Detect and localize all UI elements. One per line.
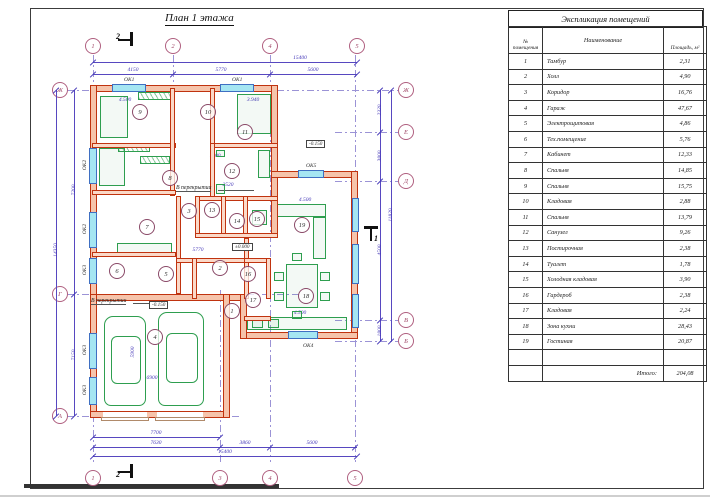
dimension-line: [93, 456, 357, 457]
table-row: 16Гардероб2,38: [509, 287, 707, 303]
window: [352, 294, 359, 328]
table-row: 3Коридор16,76: [509, 85, 707, 101]
section-mark-line: [118, 471, 130, 473]
room-number-cell: 3: [509, 85, 543, 101]
dimension-label: 4500: [377, 245, 383, 256]
room-area-cell: 1,78: [664, 256, 707, 272]
axis-circle: Б: [398, 333, 414, 349]
room-name-cell: Тех.помещение: [543, 131, 664, 147]
room-area-cell: 20,87: [664, 334, 707, 350]
dimension-label: 3800: [377, 151, 383, 162]
empty-cell: [509, 350, 543, 366]
room-area-cell: 13,79: [664, 209, 707, 225]
table-row: 7Кабинет12,33: [509, 147, 707, 163]
window: [352, 244, 359, 284]
car-top-view: [104, 316, 146, 406]
room-number-circle: 10: [200, 104, 216, 120]
dimension-label: 14350: [53, 243, 59, 257]
room-number-circle: 17: [245, 292, 261, 308]
window-label: ОК3: [82, 345, 88, 355]
bathtub: [258, 150, 270, 178]
room-area-cell: 14,85: [664, 163, 707, 179]
axis-circle: 5: [349, 38, 365, 54]
dimension-label: 4150: [128, 67, 139, 73]
dimension-label: 7200: [71, 185, 77, 196]
furniture-chair: [292, 253, 302, 261]
inner-dimension-label: 5770: [193, 247, 204, 253]
room-number-cell: 12: [509, 225, 543, 241]
axis-circle: 1: [85, 470, 101, 486]
interior-wall: [176, 258, 246, 263]
interior-wall: [221, 196, 226, 238]
dimension-label: 15400: [293, 55, 307, 61]
exterior-wall: [271, 85, 278, 238]
dimension-line: [93, 437, 220, 438]
room-number-circle: 7: [139, 219, 155, 235]
section-mark-label: 1: [374, 234, 378, 243]
axis-circle: 2: [165, 38, 181, 54]
room-name-cell: Кладовая: [543, 194, 664, 210]
section-mark-flag: [130, 464, 133, 478]
table-row: 8Спальня14,85: [509, 163, 707, 179]
interior-wall: [195, 233, 278, 238]
garage-door-leaf: [101, 417, 149, 421]
table-row: 6Тех.помещение5,76: [509, 131, 707, 147]
furniture-wardrobe: [140, 156, 170, 164]
room-number-circle: 16: [240, 266, 256, 282]
room-number-circle: 8: [162, 170, 178, 186]
ceiling-note: В перекрытии: [91, 298, 126, 305]
furniture-sofa: [274, 204, 326, 217]
room-name-cell: Спальня: [543, 178, 664, 194]
section-mark-line: [370, 229, 372, 241]
dimension-label: 11820: [388, 208, 394, 221]
drawing-sheet: План 1 этажа 12451345ЖГАЖЕДВБ15400415057…: [0, 0, 710, 502]
room-area-cell: 2,38: [664, 287, 707, 303]
section-mark-line: [118, 39, 130, 41]
room-number-cell: 6: [509, 131, 543, 147]
room-area-cell: 5,76: [664, 131, 707, 147]
furniture-chair: [320, 292, 330, 301]
interior-wall: [195, 196, 278, 201]
room-area-cell: 4,90: [664, 69, 707, 85]
section-mark-flag: [130, 32, 133, 46]
axis-circle: Ж: [398, 82, 414, 98]
room-number-cell: 8: [509, 163, 543, 179]
room-number-cell: 7: [509, 147, 543, 163]
room-number-cell: 15: [509, 272, 543, 288]
room-name-cell: Коридор: [543, 85, 664, 101]
inner-dimension-label: 6900: [147, 375, 158, 381]
room-number-circle: 6: [109, 263, 125, 279]
window-label: ОК5: [306, 163, 316, 169]
col-header-area: Площадь, м²: [664, 27, 707, 54]
window: [89, 148, 97, 184]
interior-wall: [266, 258, 271, 299]
dimension-line: [93, 447, 357, 448]
room-number-circle: 3: [181, 203, 197, 219]
room-name-cell: Холл: [543, 69, 664, 85]
window: [298, 170, 324, 178]
table-total-row: Итого:204,08: [509, 365, 707, 382]
dimension-label: 7150: [71, 350, 77, 361]
interior-wall: [192, 258, 197, 299]
room-name-cell: Холодная кладовая: [543, 272, 664, 288]
room-number-circle: 12: [224, 163, 240, 179]
table-row: 9Спальня15,75: [509, 178, 707, 194]
window-label: ОК4: [303, 343, 313, 349]
car-cabin: [166, 333, 199, 383]
table-row: 13Постирочная2,38: [509, 241, 707, 257]
interior-wall: [92, 190, 176, 195]
window: [89, 212, 97, 248]
room-area-cell: 2,38: [664, 241, 707, 257]
level-mark: -0.150: [306, 140, 325, 148]
table-header-row: № помещенияНаименованиеПлощадь, м²: [509, 27, 707, 54]
room-number-cell: 17: [509, 303, 543, 319]
table-row: 19Гостиная20,87: [509, 334, 707, 350]
room-number-cell: 11: [509, 209, 543, 225]
axis-circle: 3: [212, 470, 228, 486]
room-name-cell: Гостиная: [543, 334, 664, 350]
room-name-cell: Зона кухни: [543, 319, 664, 335]
room-number-circle: 1: [224, 303, 240, 319]
explication-table: № помещенияНаименованиеПлощадь, м²1Тамбу…: [508, 26, 707, 382]
total-label: Итого:: [543, 365, 664, 382]
furniture-chair: [320, 272, 330, 281]
toilet: [216, 184, 225, 194]
room-name-cell: Кладовая: [543, 303, 664, 319]
table-row: 17Кладовая2,24: [509, 303, 707, 319]
room-number-circle: 13: [204, 202, 220, 218]
room-name-cell: Спальня: [543, 163, 664, 179]
ceiling-note: В перекрытии: [176, 185, 211, 192]
level-mark: ±0.000: [232, 243, 253, 251]
window: [288, 331, 318, 339]
room-area-cell: 47,67: [664, 100, 707, 116]
interior-wall: [210, 143, 215, 201]
car-cabin: [111, 336, 141, 384]
room-name-cell: Туалет: [543, 256, 664, 272]
furniture-wardrobe: [138, 92, 172, 100]
table-row: 11Спальня13,79: [509, 209, 707, 225]
window: [220, 84, 254, 92]
window: [89, 258, 97, 284]
room-number-cell: 13: [509, 241, 543, 257]
room-name-cell: Тамбур: [543, 54, 664, 70]
room-area-cell: 2,88: [664, 194, 707, 210]
axis-grid-line: [335, 181, 398, 182]
window-label: ОК3: [82, 385, 88, 395]
window-label: ОК3: [82, 265, 88, 275]
window: [89, 377, 97, 405]
dimension-line: [93, 74, 357, 75]
room-area-cell: 12,33: [664, 147, 707, 163]
room-area-cell: 9,26: [664, 225, 707, 241]
bath-sink: [216, 150, 225, 157]
room-name-cell: Гараж: [543, 100, 664, 116]
window: [112, 84, 146, 92]
room-name-cell: Спальня: [543, 209, 664, 225]
table-row: 5Электрощитовая4,86: [509, 116, 707, 132]
window-label: ОК2: [82, 224, 88, 234]
interior-wall: [210, 143, 278, 148]
inner-dimension-label: 4.500: [299, 197, 311, 203]
dimension-label: 5600: [307, 440, 318, 446]
room-area-cell: 2,24: [664, 303, 707, 319]
room-area-cell: 3,90: [664, 272, 707, 288]
dimension-label: 3860: [240, 440, 251, 446]
room-number-circle: 5: [158, 266, 174, 282]
room-area-cell: 4,86: [664, 116, 707, 132]
room-number-circle: 18: [298, 288, 314, 304]
dimension-label: 1800: [377, 326, 383, 337]
dimension-line: [93, 62, 357, 63]
explication-table-wrap: № помещенияНаименованиеПлощадь, м²1Тамбу…: [508, 26, 707, 382]
room-number-cell: 16: [509, 287, 543, 303]
table-row: 10Кладовая2,88: [509, 194, 707, 210]
room-name-cell: Кабинет: [543, 147, 664, 163]
room-name-cell: Санузел: [543, 225, 664, 241]
table-row: 12Санузел9,26: [509, 225, 707, 241]
table-row: 18Зона кухни28,43: [509, 319, 707, 335]
room-area-cell: 15,75: [664, 178, 707, 194]
room-area-cell: 16,76: [664, 85, 707, 101]
room-number-cell: 1: [509, 54, 543, 70]
room-number-cell: 19: [509, 334, 543, 350]
room-number-cell: 9: [509, 178, 543, 194]
level-mark: -0.150: [149, 301, 168, 309]
room-number-cell: 18: [509, 319, 543, 335]
axis-grid-line: [335, 132, 398, 133]
room-number-circle: 9: [132, 104, 148, 120]
axis-circle: 4: [262, 470, 278, 486]
table-empty-row: [509, 350, 707, 366]
room-number-circle: 2: [212, 260, 228, 276]
axis-circle: В: [398, 312, 414, 328]
room-name-cell: Гардероб: [543, 287, 664, 303]
interior-wall: [244, 316, 271, 321]
interior-wall: [92, 143, 176, 148]
table-row: 1Тамбур2,31: [509, 54, 707, 70]
floor-plan: 12451345ЖГАЖЕДВБ154004150577056007700763…: [0, 0, 510, 502]
dimension-label: 7700: [151, 430, 162, 436]
empty-cell: [664, 350, 707, 366]
room-number-cell: 14: [509, 256, 543, 272]
garage-door-leaf: [155, 417, 205, 421]
interior-wall: [195, 196, 200, 238]
furniture-bed: [99, 148, 125, 186]
table-row: 4Гараж47,67: [509, 100, 707, 116]
room-number-cell: 2: [509, 69, 543, 85]
window-label: ОК1: [232, 77, 242, 83]
dimension-label: 2320: [377, 105, 383, 116]
room-name-cell: Постирочная: [543, 241, 664, 257]
col-header-name: Наименование: [543, 27, 664, 54]
room-number-circle: 19: [294, 217, 310, 233]
room-number-circle: 15: [249, 211, 265, 227]
dimension-line: [380, 90, 381, 341]
total-spacer: [509, 365, 543, 382]
furniture-chair: [274, 292, 284, 301]
axis-circle: Г: [52, 286, 68, 302]
room-number-circle: 11: [237, 124, 253, 140]
room-number-cell: 4: [509, 100, 543, 116]
table-row: 2Холл4,90: [509, 69, 707, 85]
axis-circle: 5: [347, 470, 363, 486]
furniture-chair: [274, 272, 284, 281]
room-name-cell: Электрощитовая: [543, 116, 664, 132]
dimension-line: [74, 90, 75, 416]
total-value: 204,08: [664, 365, 707, 382]
dimension-label: 5770: [216, 67, 227, 73]
dimension-label: 7630: [151, 440, 162, 446]
room-number-circle: 4: [147, 329, 163, 345]
axis-circle: 4: [262, 38, 278, 54]
window-label: ОК1: [124, 77, 134, 83]
room-number-circle: 14: [229, 213, 245, 229]
axis-circle: Е: [398, 124, 414, 140]
axis-circle: 1: [85, 38, 101, 54]
window-label: ОК2: [82, 160, 88, 170]
window: [352, 198, 359, 232]
axis-circle: Д: [398, 173, 414, 189]
room-number-cell: 10: [509, 194, 543, 210]
interior-wall: [92, 252, 176, 257]
dimension-label: 15400: [218, 449, 232, 455]
room-area-cell: 28,43: [664, 319, 707, 335]
dimension-label: 5600: [308, 67, 319, 73]
room-area-cell: 2,31: [664, 54, 707, 70]
table-row: 15Холодная кладовая3,90: [509, 272, 707, 288]
col-header-num: № помещения: [509, 27, 543, 54]
furniture-sofa: [313, 217, 326, 259]
empty-cell: [543, 350, 664, 366]
table-row: 14Туалет1,78: [509, 256, 707, 272]
furniture-bed: [100, 96, 128, 138]
window: [89, 333, 97, 369]
room-number-cell: 5: [509, 116, 543, 132]
car-top-view: [158, 312, 204, 406]
